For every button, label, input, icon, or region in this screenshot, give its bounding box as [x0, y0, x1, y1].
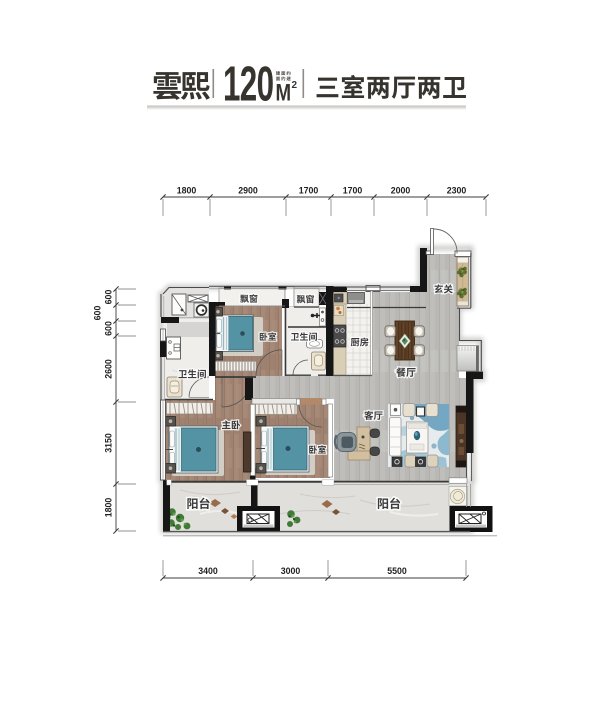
- svg-text:2000: 2000: [391, 186, 411, 196]
- svg-text:2900: 2900: [238, 186, 258, 196]
- svg-text:600: 600: [104, 321, 114, 336]
- svg-text:1800: 1800: [177, 186, 197, 196]
- svg-text:3400: 3400: [198, 566, 218, 576]
- svg-text:3150: 3150: [104, 433, 114, 453]
- svg-text:5500: 5500: [387, 566, 407, 576]
- svg-text:120: 120: [223, 56, 273, 111]
- svg-text:2: 2: [292, 80, 298, 91]
- svg-text:M: M: [276, 79, 292, 106]
- svg-text:600: 600: [93, 306, 103, 321]
- svg-text:600: 600: [104, 290, 114, 305]
- svg-text:2600: 2600: [104, 359, 114, 379]
- svg-text:1700: 1700: [299, 186, 319, 196]
- svg-text:1800: 1800: [104, 498, 114, 518]
- svg-text:3000: 3000: [281, 566, 301, 576]
- svg-text:2300: 2300: [447, 186, 467, 196]
- svg-text:1700: 1700: [343, 186, 363, 196]
